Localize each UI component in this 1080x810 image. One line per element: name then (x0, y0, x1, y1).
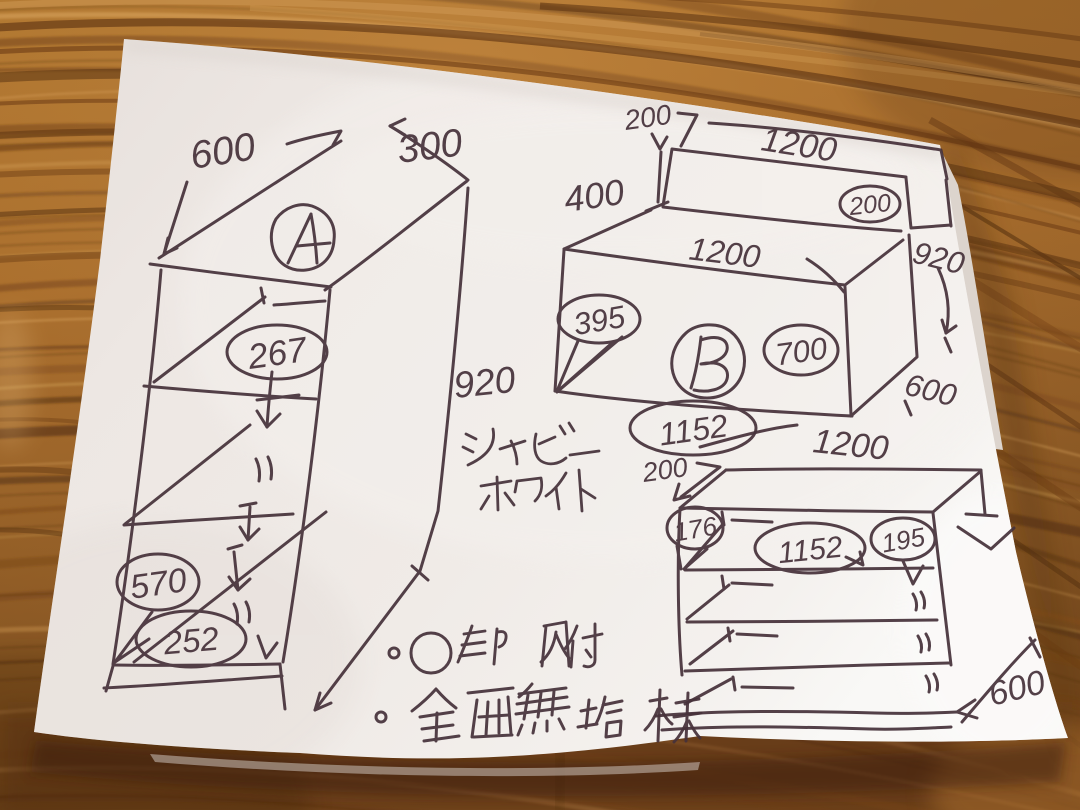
svg-text:1152: 1152 (776, 531, 844, 571)
svg-text:700: 700 (773, 331, 829, 373)
svg-text:1200: 1200 (811, 422, 890, 468)
svg-text:300: 300 (395, 121, 465, 172)
svg-text:920: 920 (452, 359, 518, 406)
svg-text:400: 400 (561, 171, 626, 220)
svg-text:200: 200 (640, 452, 690, 488)
svg-text:252: 252 (161, 620, 220, 662)
svg-text:200: 200 (622, 99, 674, 136)
svg-text:200: 200 (847, 189, 892, 221)
svg-text:570: 570 (128, 561, 190, 607)
